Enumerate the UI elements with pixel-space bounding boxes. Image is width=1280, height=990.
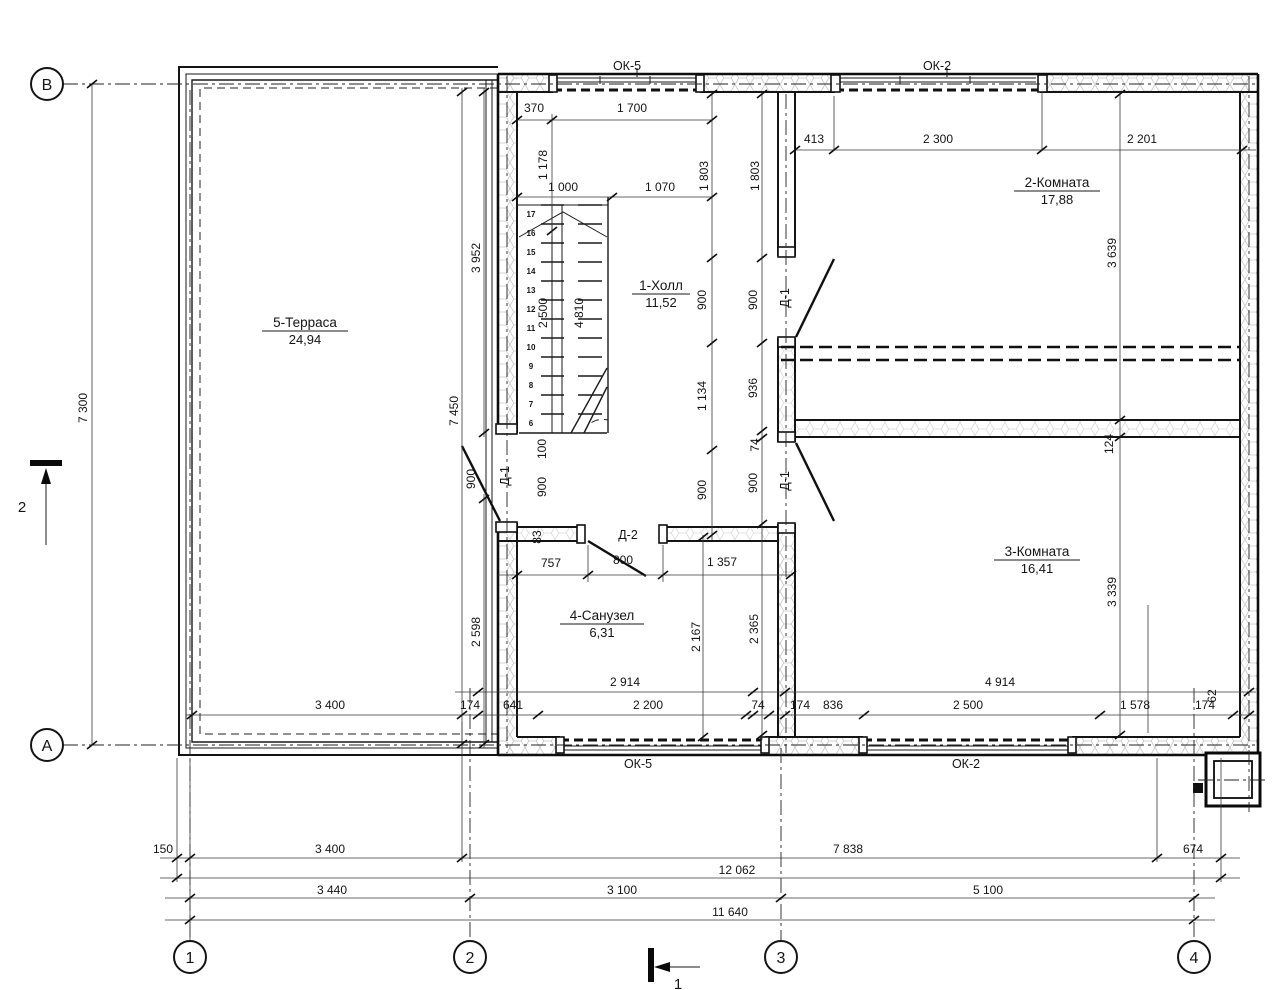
- axis-label-v: В: [42, 77, 53, 94]
- stair-step-number: 12: [527, 305, 536, 314]
- stair-step-number: 9: [529, 362, 534, 371]
- dimension-lines: [87, 80, 1256, 943]
- stair-step-number: 15: [527, 248, 536, 257]
- dimension-label: 7 838: [833, 842, 863, 856]
- room-area-hall: 11,52: [645, 295, 677, 310]
- dimension-label: 2 365: [747, 614, 761, 644]
- dimension-label: 936: [746, 378, 760, 398]
- dimension-label: 100: [535, 439, 549, 459]
- dimension-label: 174: [460, 698, 480, 712]
- dimension-label: 7 300: [76, 393, 90, 423]
- stair-step-number: 8: [529, 381, 534, 390]
- staircase: 17161514131211109876: [517, 197, 608, 433]
- window-label-ok5-bottom: ОК-5: [624, 757, 652, 771]
- axis-label-a: А: [42, 738, 53, 755]
- axis-label-3: 3: [777, 950, 786, 967]
- dimension-label: 5 100: [973, 883, 1003, 897]
- dimension-label: 74: [748, 438, 762, 452]
- room-area-bathroom: 6,31: [589, 625, 614, 640]
- dimension-label: 4 810: [572, 298, 586, 328]
- section-label-2: 2: [18, 499, 26, 516]
- dimension-label: 900: [535, 477, 549, 497]
- dimension-label: 11 640: [712, 905, 748, 919]
- window-label-ok5-top: ОК-5: [613, 59, 641, 73]
- stair-step-number: 11: [527, 324, 536, 333]
- dimension-label: 12 062: [719, 863, 756, 877]
- dimension-label: 62: [1205, 689, 1219, 703]
- stair-step-number: 14: [527, 267, 536, 276]
- dimension-label: 3 400: [315, 698, 345, 712]
- exterior-walls: [497, 72, 1258, 755]
- door-label-d1-room3: Д-1: [778, 471, 792, 491]
- window-label-ok2-bottom: ОК-2: [952, 757, 980, 771]
- dimension-label: 900: [746, 473, 760, 493]
- beam-dashed-lines: [781, 347, 1240, 360]
- dimension-label: 3 400: [315, 842, 345, 856]
- room-name-room2: 2-Комната: [1025, 175, 1090, 190]
- section-label-1: 1: [674, 976, 682, 990]
- dimension-label: 2 598: [469, 617, 483, 647]
- dimension-label: 2 500: [953, 698, 983, 712]
- stair-step-number: 13: [527, 286, 536, 295]
- door-label-d1-room2: Д-1: [778, 288, 792, 308]
- axis-label-4: 4: [1190, 950, 1199, 967]
- stair-step-number: 6: [529, 419, 534, 428]
- room-area-room2: 17,88: [1041, 192, 1074, 207]
- dimension-label: 3 440: [317, 883, 347, 897]
- room-name-terrace: 5-Терраса: [273, 315, 337, 330]
- dimension-label: 1 803: [748, 161, 762, 191]
- stair-step-numbers: 17161514131211109876: [527, 210, 536, 428]
- dimension-label: 83: [530, 530, 544, 544]
- dimension-label: 124: [1102, 434, 1116, 454]
- axis-label-2: 2: [466, 950, 475, 967]
- door-label-d1-entrance: Д-1: [498, 466, 512, 486]
- dimension-label: 2 200: [633, 698, 663, 712]
- room-area-terrace: 24,94: [289, 332, 322, 347]
- room-labels: 5-Терраса 24,94 1-Холл 11,52 2-Комната 1…: [262, 175, 1100, 640]
- stair-step-number: 16: [527, 229, 536, 238]
- dimension-label: 1 000: [548, 180, 578, 194]
- dimension-label: 3 952: [469, 243, 483, 273]
- stair-step-number: 10: [527, 343, 536, 352]
- dimension-label: 3 100: [607, 883, 637, 897]
- axis-label-1: 1: [186, 950, 195, 967]
- axis-bubbles: В А 1 2 3 4: [31, 68, 1210, 973]
- dimension-label: 1 700: [617, 101, 647, 115]
- floor-plan-drawing: 17161514131211109876 2: [0, 0, 1280, 990]
- dimension-label: 1 357: [707, 555, 737, 569]
- dimension-label: 900: [464, 469, 478, 489]
- dimension-label: 2 500: [536, 298, 550, 328]
- dimension-label: 757: [541, 556, 561, 570]
- dimension-label: 1 134: [695, 381, 709, 411]
- stair-step-number: 17: [527, 210, 536, 219]
- dimension-label: 2 167: [689, 622, 703, 652]
- section-mark-2: 2: [18, 460, 62, 545]
- dimension-label: 2 300: [923, 132, 953, 146]
- dimension-label: 1 178: [536, 150, 550, 180]
- dimension-label: 2 914: [610, 675, 640, 689]
- section-mark-1: 1: [648, 948, 700, 990]
- dimension-label: 836: [823, 698, 843, 712]
- dimension-labels: 3701 7001 0001 0704132 3002 2017578001 3…: [76, 101, 1219, 919]
- room-area-room3: 16,41: [1021, 561, 1054, 576]
- dimension-label: 800: [613, 553, 633, 567]
- dimension-label: 174: [790, 698, 810, 712]
- dimension-label: 3 639: [1105, 238, 1119, 268]
- dimension-label: 3 339: [1105, 577, 1119, 607]
- dimension-label: 900: [695, 480, 709, 500]
- opening-labels: ОК-5 ОК-2 ОК-5 ОК-2 Д-1 Д-1 Д-1 Д-2: [498, 59, 980, 771]
- wall-outlines: [498, 74, 1258, 755]
- dimension-label: 413: [804, 132, 824, 146]
- room-name-hall: 1-Холл: [639, 278, 683, 293]
- dimension-label: 370: [524, 101, 544, 115]
- room-name-bathroom: 4-Санузел: [570, 608, 635, 623]
- dimension-label: 900: [746, 290, 760, 310]
- dimension-label: 150: [153, 842, 173, 856]
- door-label-d2-bathroom: Д-2: [618, 528, 638, 542]
- dimension-label: 74: [751, 698, 765, 712]
- windows: [549, 68, 1076, 753]
- window-label-ok2-top: ОК-2: [923, 59, 951, 73]
- dimension-label: 641: [503, 698, 523, 712]
- dimension-label: 2 201: [1127, 132, 1157, 146]
- dimension-label: 1 578: [1120, 698, 1150, 712]
- dimension-label: 674: [1183, 842, 1203, 856]
- room-name-room3: 3-Комната: [1005, 544, 1070, 559]
- dimension-label: 900: [695, 290, 709, 310]
- dimension-label: 1 803: [697, 161, 711, 191]
- axis-lines: [63, 76, 1258, 941]
- chimney: [1193, 750, 1266, 812]
- floor-plan-page: 17161514131211109876 2: [0, 0, 1280, 990]
- dimension-label: 7 450: [447, 396, 461, 426]
- dimension-label: 1 070: [645, 180, 675, 194]
- dimension-label: 4 914: [985, 675, 1015, 689]
- stair-step-number: 7: [529, 400, 534, 409]
